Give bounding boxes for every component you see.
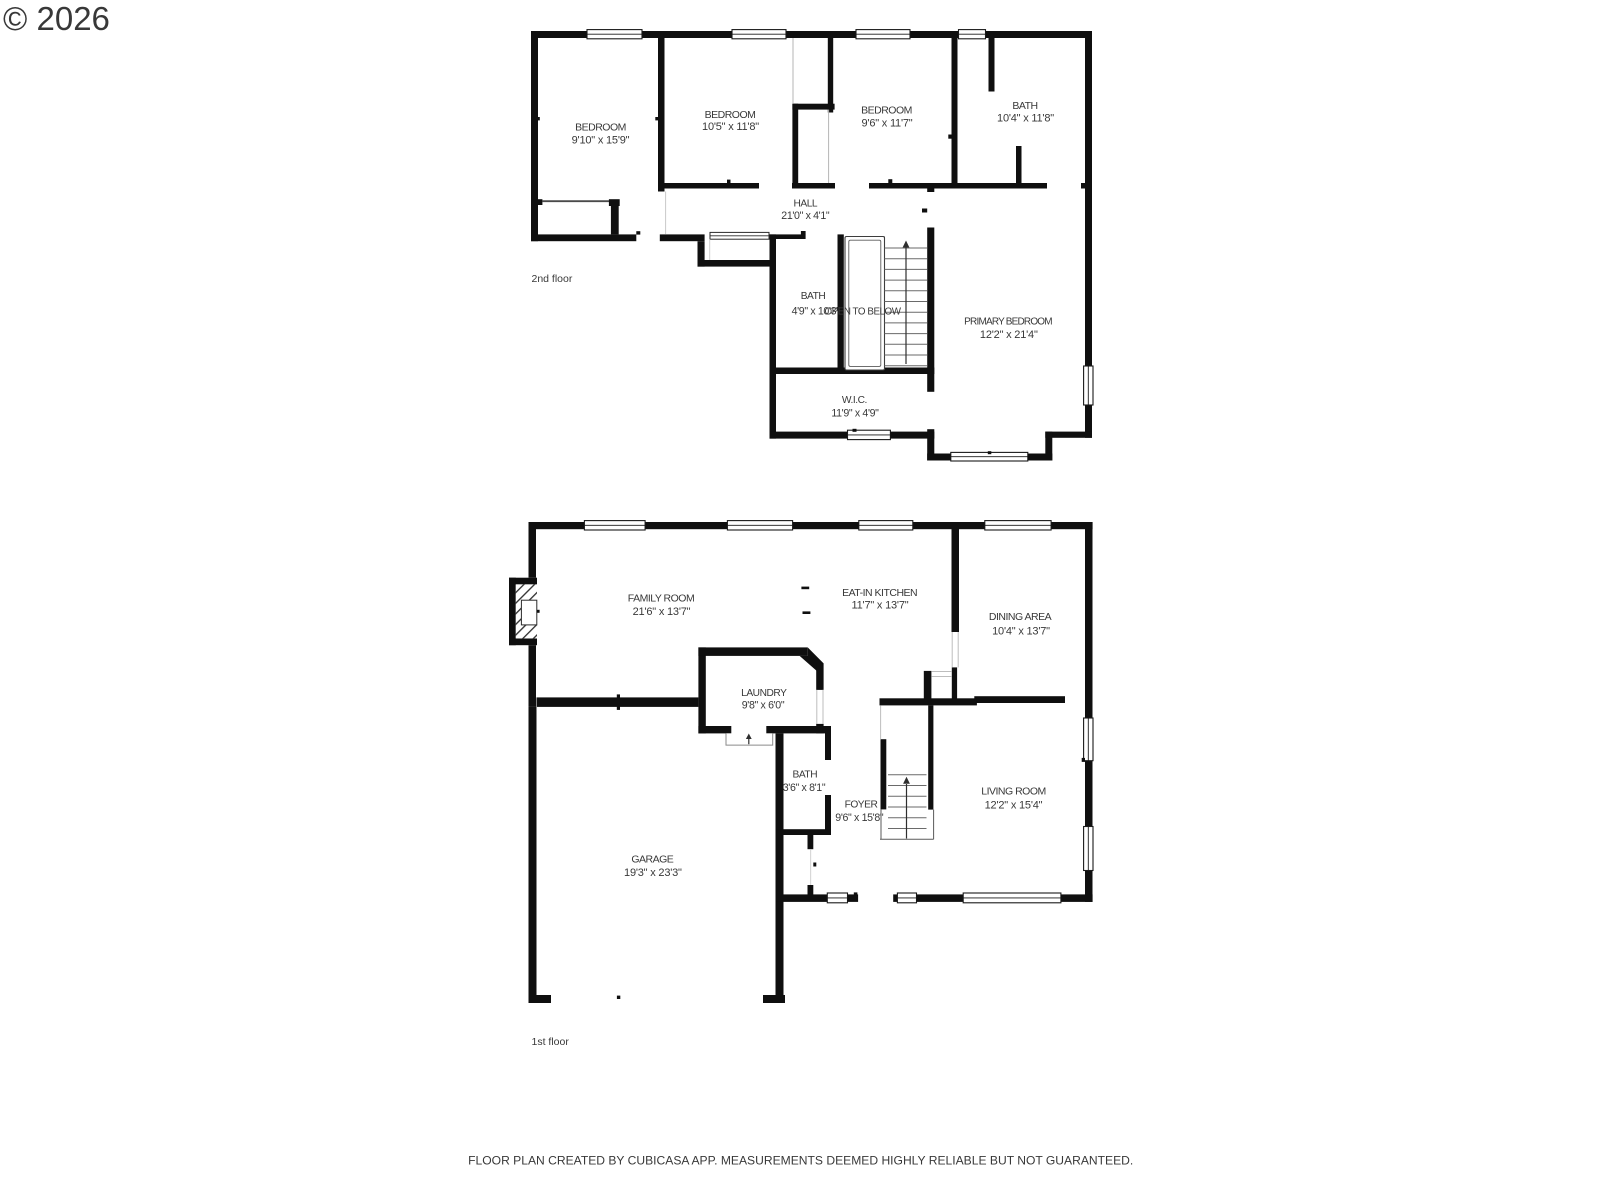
svg-text:OPEN TO BELOW: OPEN TO BELOW bbox=[825, 307, 902, 318]
svg-text:9'10" x 15'9": 9'10" x 15'9" bbox=[572, 135, 630, 147]
svg-text:10'4" x 11'8": 10'4" x 11'8" bbox=[997, 113, 1054, 125]
svg-text:12'2" x 15'4": 12'2" x 15'4" bbox=[985, 800, 1043, 812]
svg-text:BEDROOM: BEDROOM bbox=[705, 109, 756, 121]
svg-text:FOYER: FOYER bbox=[845, 800, 878, 811]
svg-text:HALL: HALL bbox=[793, 199, 817, 210]
svg-text:BEDROOM: BEDROOM bbox=[861, 105, 912, 117]
svg-text:BATH: BATH bbox=[792, 770, 817, 781]
svg-text:LAUNDRY: LAUNDRY bbox=[741, 688, 787, 699]
svg-text:W.I.C.: W.I.C. bbox=[842, 395, 867, 406]
svg-text:FLOOR PLAN CREATED BY CUBICASA: FLOOR PLAN CREATED BY CUBICASA APP. MEAS… bbox=[468, 1154, 1133, 1168]
svg-text:1st floor: 1st floor bbox=[532, 1036, 570, 1048]
svg-text:9'8" x 6'0": 9'8" x 6'0" bbox=[742, 700, 785, 712]
svg-text:BEDROOM: BEDROOM bbox=[575, 122, 626, 134]
svg-text:2nd floor: 2nd floor bbox=[532, 273, 573, 285]
svg-text:21'6" x 13'7": 21'6" x 13'7" bbox=[633, 606, 691, 618]
svg-text:LIVING ROOM: LIVING ROOM bbox=[981, 786, 1046, 798]
svg-text:FAMILY ROOM: FAMILY ROOM bbox=[628, 593, 694, 605]
svg-text:3'6" x 8'1": 3'6" x 8'1" bbox=[783, 782, 826, 794]
svg-text:11'9" x 4'9": 11'9" x 4'9" bbox=[831, 408, 879, 420]
svg-text:© 2026: © 2026 bbox=[3, 0, 110, 37]
svg-text:GARAGE: GARAGE bbox=[631, 854, 673, 866]
svg-text:11'7" x 13'7": 11'7" x 13'7" bbox=[852, 600, 909, 612]
svg-text:9'6" x 11'7": 9'6" x 11'7" bbox=[862, 118, 913, 130]
svg-text:BATH: BATH bbox=[1012, 100, 1037, 112]
svg-text:10'4" x 13'7": 10'4" x 13'7" bbox=[992, 626, 1050, 638]
svg-text:EAT-IN KITCHEN: EAT-IN KITCHEN bbox=[842, 587, 917, 599]
svg-text:12'2" x 21'4": 12'2" x 21'4" bbox=[980, 329, 1038, 341]
svg-text:9'6" x 15'8": 9'6" x 15'8" bbox=[835, 812, 884, 824]
svg-text:21'0" x 4'1": 21'0" x 4'1" bbox=[781, 210, 830, 222]
svg-text:BATH: BATH bbox=[801, 291, 826, 302]
svg-text:PRIMARY BEDROOM: PRIMARY BEDROOM bbox=[964, 317, 1052, 328]
svg-text:19'3" x 23'3": 19'3" x 23'3" bbox=[624, 867, 682, 879]
svg-text:10'5" x 11'8": 10'5" x 11'8" bbox=[702, 121, 759, 133]
svg-text:DINING AREA: DINING AREA bbox=[989, 611, 1052, 623]
